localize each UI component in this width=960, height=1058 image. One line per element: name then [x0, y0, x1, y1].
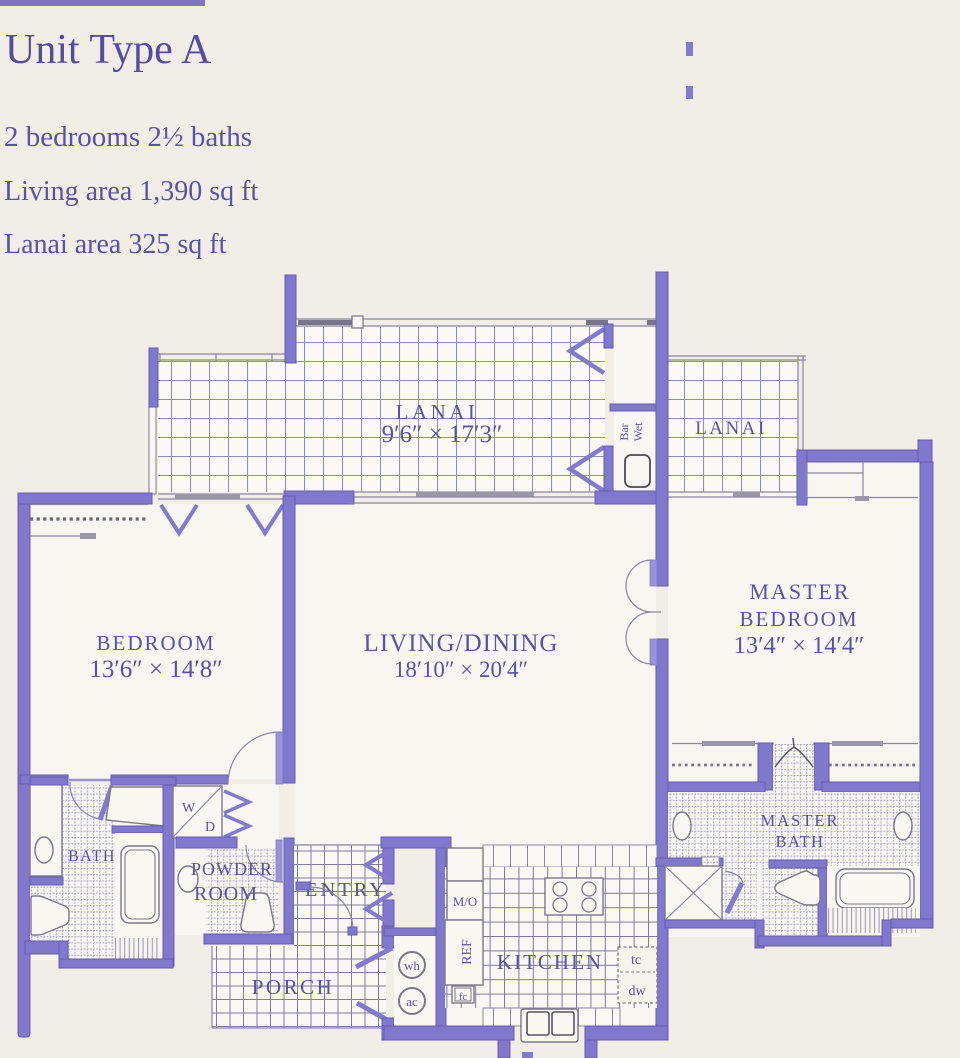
svg-text:MASTER: MASTER — [761, 811, 840, 830]
svg-text:13′6″ × 14′8″: 13′6″ × 14′8″ — [89, 656, 222, 683]
svg-text:Unit Type A: Unit Type A — [5, 27, 212, 73]
svg-text:ac: ac — [406, 994, 418, 1009]
svg-text:Lanai area 325 sq ft: Lanai area 325 sq ft — [4, 229, 227, 260]
svg-text:ENTRY: ENTRY — [305, 879, 387, 901]
svg-text:dw: dw — [628, 984, 646, 999]
svg-text:LANAI: LANAI — [695, 418, 767, 439]
svg-text:9′6″ × 17′3″: 9′6″ × 17′3″ — [382, 421, 503, 448]
svg-text:13′4″ × 14′4″: 13′4″ × 14′4″ — [734, 632, 865, 659]
svg-text:Living area 1,390 sq ft: Living area 1,390 sq ft — [4, 176, 258, 207]
svg-text:W: W — [182, 801, 196, 816]
svg-text:D: D — [205, 820, 215, 835]
svg-text:M/O: M/O — [453, 894, 478, 909]
svg-text:PORCH: PORCH — [252, 975, 335, 999]
svg-text:Wet: Wet — [631, 422, 645, 442]
svg-text:18′10″ × 20′4″: 18′10″ × 20′4″ — [394, 657, 528, 682]
svg-text:ROOM: ROOM — [194, 883, 258, 905]
svg-text:KITCHEN: KITCHEN — [497, 950, 603, 974]
svg-text:fc: fc — [459, 991, 468, 1003]
svg-text:LIVING/DINING: LIVING/DINING — [364, 630, 559, 657]
svg-text:Bar: Bar — [617, 423, 631, 440]
svg-text:BEDROOM: BEDROOM — [96, 631, 215, 655]
svg-text:BEDROOM: BEDROOM — [739, 607, 858, 631]
svg-text:wh: wh — [404, 958, 420, 973]
svg-text:MASTER: MASTER — [749, 579, 850, 604]
svg-text:REF: REF — [460, 939, 475, 965]
svg-text:BATH: BATH — [68, 848, 116, 865]
svg-text:2 bedrooms 2½ baths: 2 bedrooms 2½ baths — [4, 121, 252, 153]
svg-text:POWDER: POWDER — [191, 859, 273, 879]
svg-text:BATH: BATH — [775, 832, 824, 851]
svg-text:tc: tc — [631, 953, 641, 968]
